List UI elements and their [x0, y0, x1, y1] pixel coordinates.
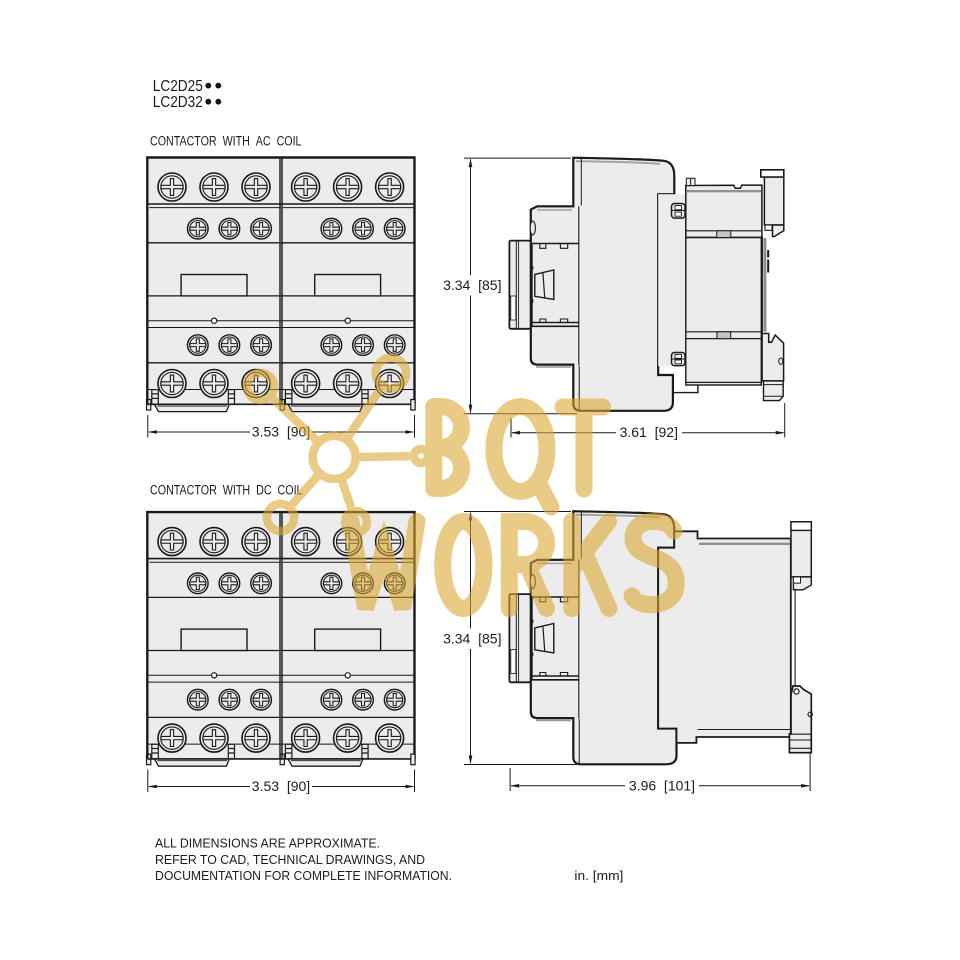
svg-text:3.53 [90]: 3.53 [90] [252, 778, 310, 794]
svg-text:3.34 [85]: 3.34 [85] [443, 277, 501, 293]
svg-text:3.34 [85]: 3.34 [85] [443, 631, 501, 647]
svg-text:REFER TO CAD, TECHNICAL DRAWIN: REFER TO CAD, TECHNICAL DRAWINGS, AND [155, 852, 425, 867]
svg-text:DOCUMENTATION FOR COMPLETE INF: DOCUMENTATION FOR COMPLETE INFORMATION. [155, 868, 452, 883]
svg-text:3.96 [101]: 3.96 [101] [629, 778, 695, 794]
svg-text:LC2D25: LC2D25 [153, 78, 203, 95]
svg-text:LC2D32: LC2D32 [153, 94, 203, 111]
svg-text:CONTACTOR WITH AC COIL: CONTACTOR WITH AC COIL [150, 133, 302, 149]
svg-text:ALL DIMENSIONS ARE APPROXIMATE: ALL DIMENSIONS ARE APPROXIMATE. [155, 836, 380, 851]
svg-text:in. [mm]: in. [mm] [574, 868, 623, 883]
svg-text:3.61 [92]: 3.61 [92] [620, 424, 678, 440]
svg-text:CONTACTOR WITH DC COIL: CONTACTOR WITH DC COIL [150, 483, 303, 499]
